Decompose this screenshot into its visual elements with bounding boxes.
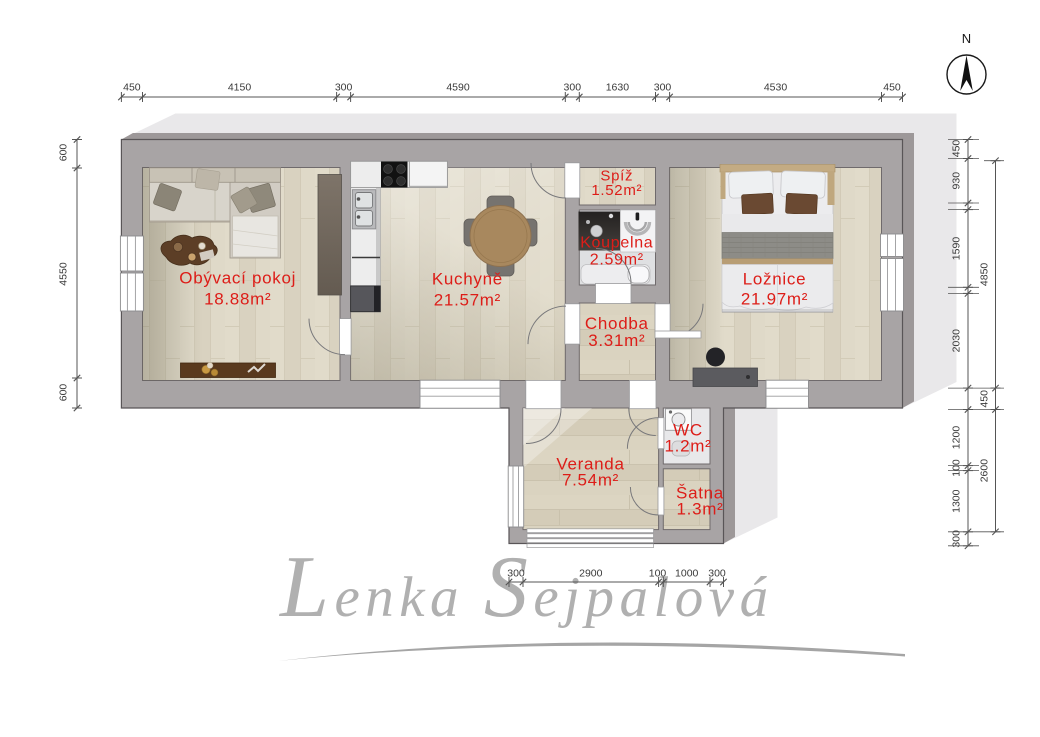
- svg-text:2.59m²: 2.59m²: [590, 252, 644, 269]
- svg-text:Kuchyně: Kuchyně: [432, 270, 503, 289]
- svg-text:100: 100: [649, 568, 667, 580]
- svg-text:450: 450: [979, 390, 991, 408]
- svg-text:450: 450: [951, 140, 963, 158]
- svg-text:2900: 2900: [579, 568, 603, 580]
- svg-text:300: 300: [507, 568, 525, 580]
- svg-text:2600: 2600: [979, 459, 991, 483]
- svg-text:4150: 4150: [228, 82, 252, 94]
- svg-text:300: 300: [564, 82, 582, 94]
- svg-text:Obývací pokoj: Obývací pokoj: [179, 269, 296, 288]
- svg-text:N: N: [962, 31, 971, 46]
- svg-text:100: 100: [951, 459, 963, 477]
- svg-text:1630: 1630: [606, 82, 630, 94]
- svg-text:21.97m²: 21.97m²: [741, 290, 808, 309]
- svg-text:450: 450: [883, 82, 901, 94]
- svg-text:600: 600: [58, 144, 70, 162]
- svg-text:1.52m²: 1.52m²: [591, 182, 642, 199]
- svg-text:300: 300: [335, 82, 353, 94]
- svg-text:21.57m²: 21.57m²: [434, 291, 501, 310]
- svg-text:300: 300: [654, 82, 672, 94]
- svg-text:930: 930: [951, 172, 963, 190]
- svg-text:7.54m²: 7.54m²: [562, 471, 619, 490]
- svg-text:4550: 4550: [58, 262, 70, 286]
- svg-text:450: 450: [123, 82, 141, 94]
- svg-text:Koupelna: Koupelna: [580, 235, 653, 252]
- svg-text:1300: 1300: [951, 489, 963, 513]
- svg-text:4530: 4530: [764, 82, 788, 94]
- svg-text:1590: 1590: [951, 237, 963, 261]
- svg-text:2030: 2030: [951, 329, 963, 353]
- svg-text:18.88m²: 18.88m²: [204, 290, 271, 309]
- svg-text:1.3m²: 1.3m²: [677, 500, 724, 519]
- svg-text:4590: 4590: [446, 82, 470, 94]
- svg-text:300: 300: [951, 530, 963, 548]
- svg-text:1200: 1200: [951, 426, 963, 450]
- svg-text:1000: 1000: [675, 568, 699, 580]
- svg-text:600: 600: [58, 384, 70, 402]
- svg-text:3.31m²: 3.31m²: [588, 331, 645, 350]
- svg-text:300: 300: [708, 568, 726, 580]
- svg-text:4850: 4850: [979, 263, 991, 287]
- svg-text:Ložnice: Ložnice: [743, 270, 807, 289]
- svg-text:1.2m²: 1.2m²: [665, 437, 712, 456]
